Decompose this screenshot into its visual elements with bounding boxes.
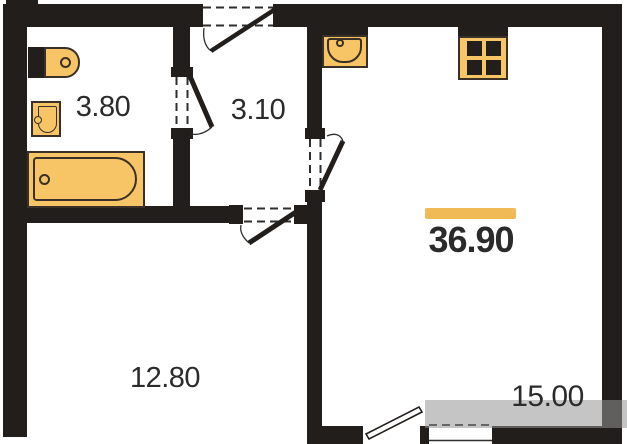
door-symbols-layer	[0, 0, 627, 444]
total-area-label: 36.90	[419, 222, 523, 258]
bathroom-door	[177, 74, 213, 134]
entrance-door	[203, 8, 274, 52]
bathroom-area-label: 3.80	[58, 93, 148, 122]
kitchen-door	[310, 134, 343, 190]
hallway-area-label: 3.10	[213, 96, 303, 125]
hallway-room-door	[241, 209, 296, 244]
room-right-area-label: 15.00	[500, 382, 595, 412]
floor-plan: 3.80 3.10 12.80 15.00 36.90	[0, 0, 627, 444]
room-left-area-label: 12.80	[119, 364, 211, 393]
total-area-bar	[425, 208, 516, 219]
